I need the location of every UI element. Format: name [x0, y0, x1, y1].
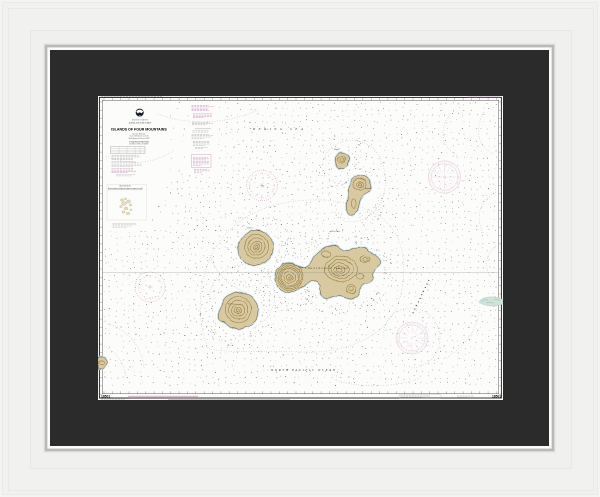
svg-text:16501: 16501: [101, 394, 110, 398]
svg-text:NORTH PACIFIC OCEAN: NORTH PACIFIC OCEAN: [270, 368, 337, 372]
svg-text:16501: 16501: [492, 394, 501, 398]
svg-text:Carlisle I.: Carlisle I.: [247, 228, 254, 230]
svg-text:Mt Cleveland: Mt Cleveland: [331, 231, 340, 233]
svg-text:ISLANDS OF FOUR MOUNTAINS: ISLANDS OF FOUR MOUNTAINS: [111, 128, 167, 132]
svg-text:Herbert I.: Herbert I.: [228, 304, 235, 306]
svg-text:CHUGINADAK ISLAND: CHUGINADAK ISLAND: [305, 267, 349, 270]
svg-text:BERING SEA: BERING SEA: [253, 127, 306, 131]
